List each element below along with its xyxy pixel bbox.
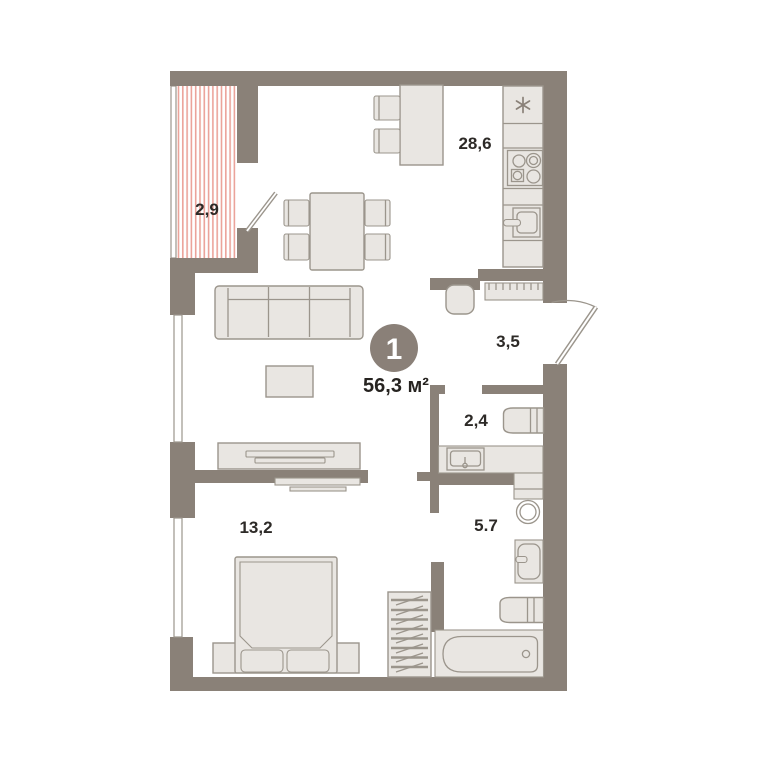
tv-stand — [255, 458, 325, 463]
sofa — [215, 286, 363, 339]
pillow — [241, 650, 283, 672]
wall-right-upper — [543, 71, 567, 303]
tv — [246, 451, 334, 457]
kitchen-fixtures — [374, 85, 543, 267]
entrance-door-arc — [552, 300, 597, 307]
bedroom-window — [174, 518, 182, 637]
pouf — [446, 285, 474, 314]
total-area-label: 56,3 м² — [363, 375, 429, 397]
wall-balcony-right-a — [237, 86, 258, 163]
wall-left-pier-bottom — [170, 637, 193, 681]
duvet — [240, 562, 332, 648]
bathroom-small-fixtures — [439, 408, 544, 473]
wall-arm — [417, 472, 439, 481]
balcony-area-label: 2,9 — [195, 200, 219, 219]
faucet-icon — [516, 557, 527, 563]
tv — [275, 478, 360, 485]
kitchen-area-label: 28,6 — [458, 134, 491, 153]
wall-bath-left-lower — [431, 562, 444, 632]
bathroom-large-fixtures — [435, 473, 544, 677]
dining-table — [310, 193, 364, 270]
wall-hall-bath — [482, 385, 543, 394]
wall-right-lower — [543, 364, 567, 691]
dining-chair — [365, 200, 390, 226]
vanity-sink — [439, 446, 544, 473]
bar-table — [374, 85, 443, 165]
living-room-window — [174, 315, 182, 442]
wall-bath-divider — [438, 473, 514, 485]
tv-console — [218, 443, 360, 469]
coffee-table — [266, 366, 313, 397]
hallway-area-label: 3,5 — [496, 332, 520, 351]
washing-machine — [500, 598, 544, 623]
wall-balcony-right-b — [237, 228, 258, 261]
dining-set — [284, 193, 390, 270]
rooms-count: 1 — [386, 333, 403, 366]
bar-stool — [374, 96, 400, 120]
bathroom-large-area-label: 5.7 — [474, 516, 498, 535]
entrance-door-leaf-inner — [557, 307, 596, 364]
balcony-area — [171, 86, 237, 258]
washing-machine — [504, 408, 544, 433]
balcony-glazing — [171, 86, 176, 258]
wall-kitchen-hall-a — [478, 269, 545, 281]
dining-chair — [365, 234, 390, 260]
bath-sink — [515, 540, 543, 583]
tv-shelf — [290, 487, 346, 491]
area-badge: 1 56,3 м² — [363, 324, 429, 397]
bedroom-furniture — [213, 478, 431, 677]
kitchen-faucet — [504, 220, 521, 227]
floor-plan-canvas: 2,9 28,6 3,5 2,4 5.7 13,2 1 56,3 м² — [0, 0, 768, 768]
bedroom-tv — [275, 478, 360, 491]
bar-stool — [374, 129, 400, 153]
bedroom-area-label: 13,2 — [239, 518, 272, 537]
entry-closet — [485, 283, 543, 300]
bathtub — [435, 630, 544, 677]
bed — [235, 557, 337, 673]
balcony-door-leaf-inner — [247, 193, 276, 231]
pillow — [287, 650, 329, 672]
wall-top — [170, 71, 567, 86]
nightstand — [213, 643, 236, 673]
wall-bottom — [170, 677, 567, 691]
floor-plan: 2,9 28,6 3,5 2,4 5.7 13,2 1 56,3 м² — [0, 0, 768, 768]
wardrobe — [388, 592, 431, 677]
bathroom-small-area-label: 2,4 — [464, 411, 488, 430]
hallway-furniture — [446, 283, 543, 314]
dining-chair — [284, 200, 309, 226]
dining-chair — [284, 234, 309, 260]
toilet — [514, 473, 543, 524]
nightstand — [336, 643, 359, 673]
wall-bath-left — [430, 385, 439, 513]
balcony-hatch — [176, 86, 237, 258]
